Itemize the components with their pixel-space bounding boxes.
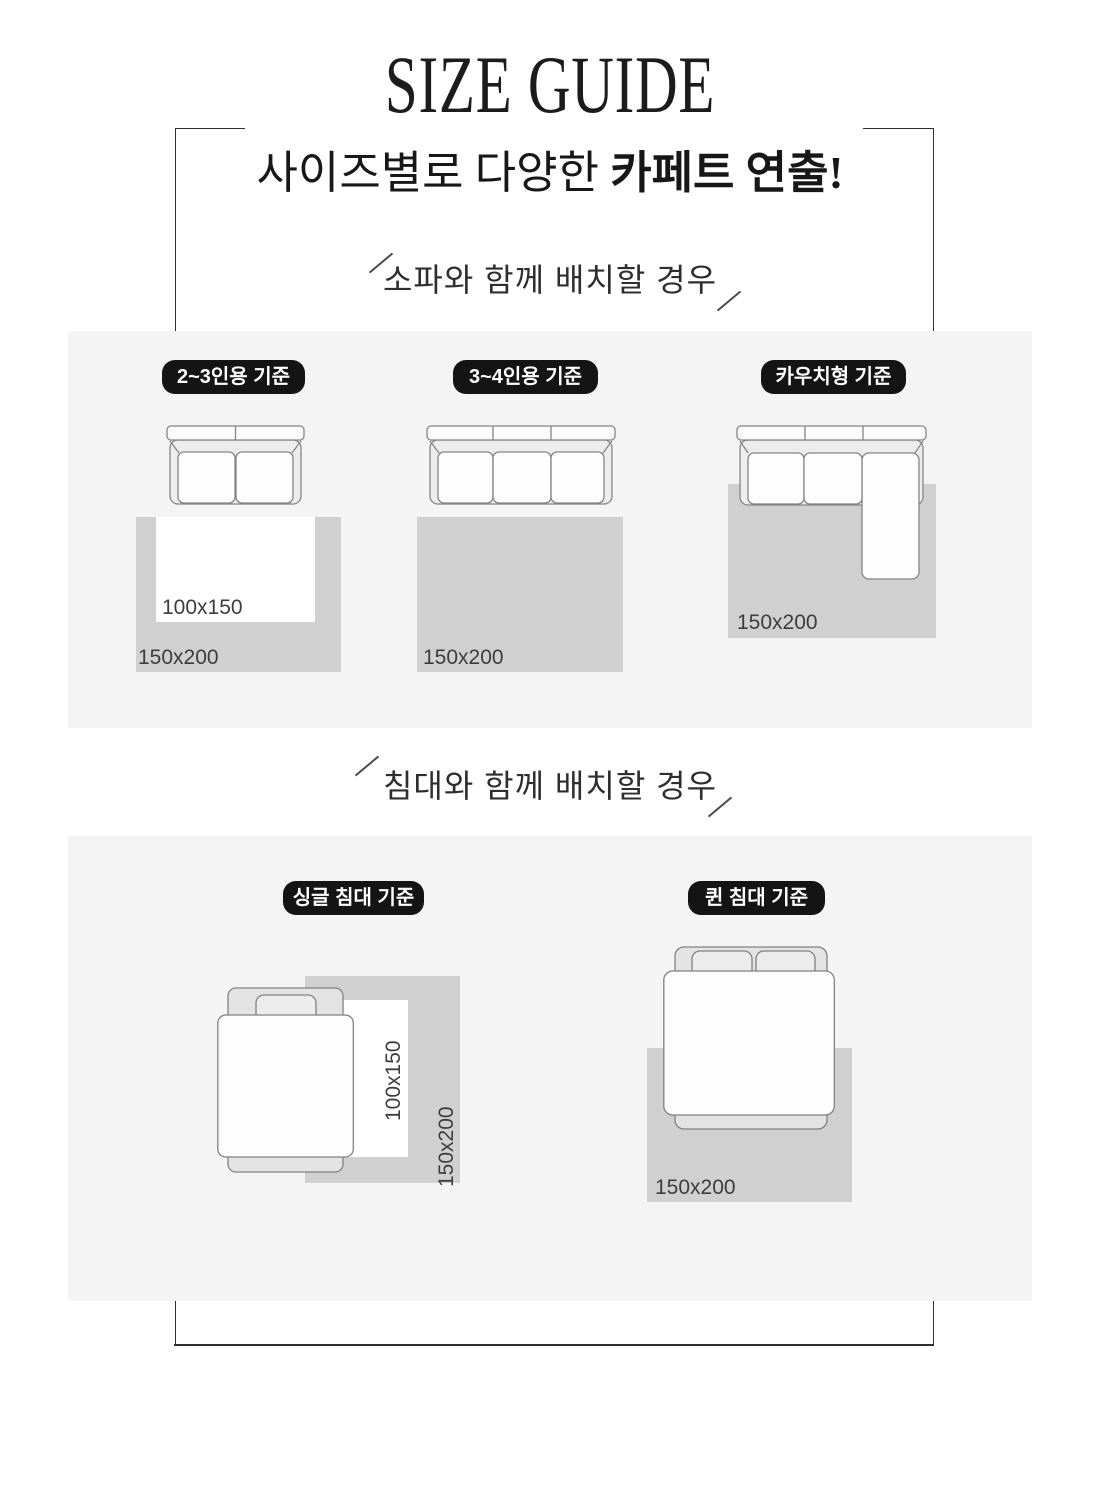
frame-top-left-line bbox=[175, 128, 245, 129]
size-label-150x200-couch: 150x200 bbox=[737, 611, 818, 635]
size-label-150x200-sofa1: 150x200 bbox=[138, 646, 219, 670]
size-label-100x150-sofa1: 100x150 bbox=[162, 596, 243, 620]
frame-top-right-line bbox=[863, 128, 933, 129]
badge-sofa-couch: 카우치형 기준 bbox=[761, 360, 906, 394]
bed-single-illustration bbox=[217, 986, 354, 1174]
bed-section-heading: 침대와 함께 배치할 경우 bbox=[0, 763, 1100, 809]
badge-bed-single: 싱글 침대 기준 bbox=[283, 881, 424, 915]
size-label-150x200-single-bed: 150x200 bbox=[435, 1107, 459, 1187]
sofa-couch-illustration bbox=[735, 425, 928, 581]
subtitle-bold: 카페트 연출! bbox=[610, 148, 843, 198]
page-subtitle: 사이즈별로 다양한 카페트 연출! bbox=[0, 143, 1100, 203]
page-title: SIZE GUIDE bbox=[154, 50, 946, 120]
size-label-100x150-single-bed: 100x150 bbox=[382, 1041, 406, 1121]
sofa-section-heading: 소파와 함께 배치할 경우 bbox=[0, 257, 1100, 303]
bed-queen-illustration bbox=[663, 945, 835, 1135]
badge-sofa-2-3-seat: 2~3인용 기준 bbox=[162, 360, 305, 394]
bed-panel bbox=[68, 836, 1032, 1301]
frame-right-lower-line bbox=[933, 1301, 934, 1345]
subtitle-regular: 사이즈별로 다양한 bbox=[257, 148, 611, 198]
size-label-150x200-sofa2: 150x200 bbox=[423, 646, 504, 670]
badge-sofa-3-4-seat: 3~4인용 기준 bbox=[453, 360, 598, 394]
sofa-2seat-illustration bbox=[165, 425, 306, 506]
frame-left-lower-line bbox=[175, 1301, 176, 1345]
frame-bottom-line bbox=[174, 1344, 934, 1346]
sofa-3seat-illustration bbox=[425, 425, 617, 506]
size-guide-page: SIZE GUIDE 사이즈별로 다양한 카페트 연출! 소파와 함께 배치할 … bbox=[0, 0, 1100, 1488]
badge-bed-queen: 퀸 침대 기준 bbox=[688, 881, 825, 915]
size-label-150x200-queen-bed: 150x200 bbox=[655, 1176, 736, 1200]
